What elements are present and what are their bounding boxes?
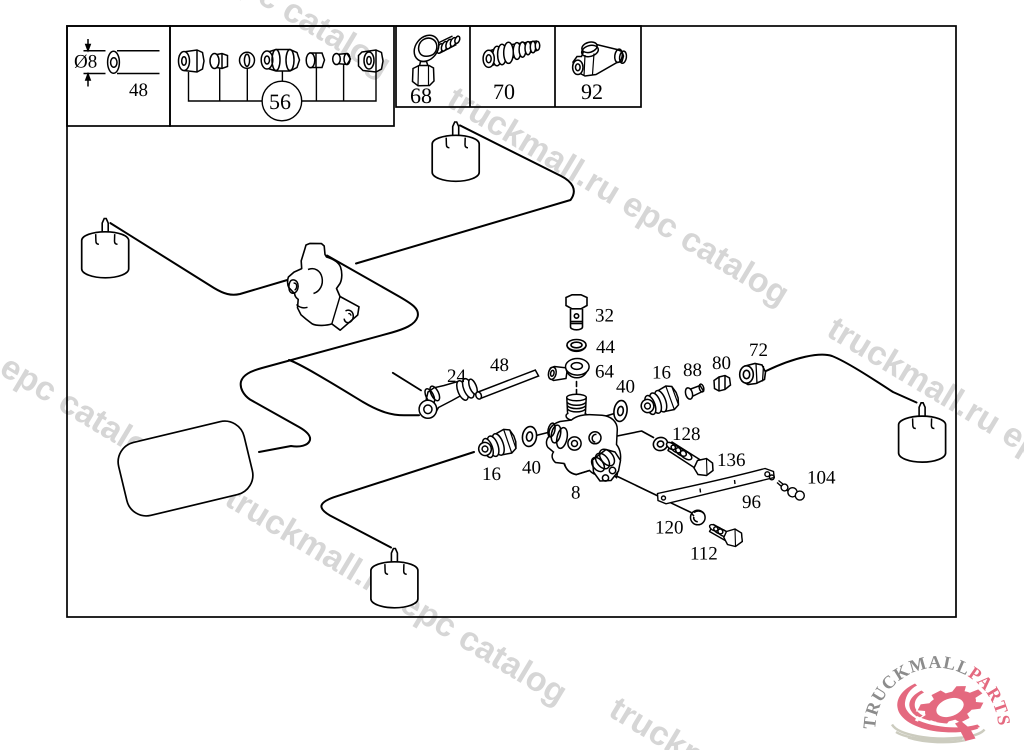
svg-text:40: 40 [522,458,541,479]
svg-text:72: 72 [749,340,768,361]
svg-text:88: 88 [683,360,702,381]
svg-text:92: 92 [581,79,603,104]
svg-text:64: 64 [595,362,615,383]
svg-text:80: 80 [712,353,731,374]
svg-text:8: 8 [571,483,581,504]
svg-text:56: 56 [269,89,291,114]
svg-text:112: 112 [690,544,718,565]
svg-text:16: 16 [482,464,501,485]
svg-text:136: 136 [717,450,746,471]
svg-text:40: 40 [616,377,635,398]
svg-text:44: 44 [596,337,616,358]
svg-text:96: 96 [742,492,761,513]
svg-text:48: 48 [490,355,509,376]
svg-text:24: 24 [447,366,467,387]
svg-text:Ø8: Ø8 [74,52,97,73]
svg-text:104: 104 [807,468,836,489]
svg-text:32: 32 [595,306,614,327]
svg-text:70: 70 [493,79,515,104]
svg-text:120: 120 [655,518,684,539]
svg-text:128: 128 [672,424,701,445]
svg-text:48: 48 [129,80,148,101]
svg-text:68: 68 [410,83,432,108]
svg-text:16: 16 [652,363,671,384]
